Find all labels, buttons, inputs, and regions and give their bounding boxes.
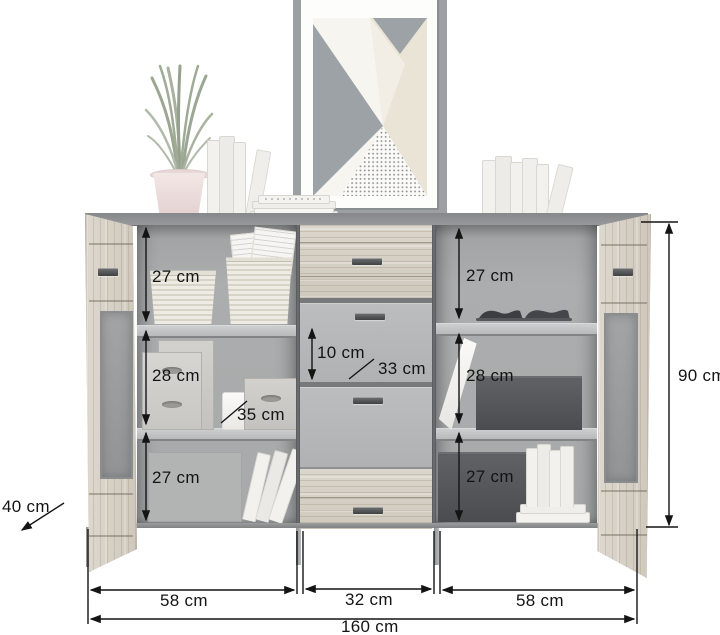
sideboard-dimension-diagram: 27 cm 28 cm 27 cm 35 cm 10 cm 33 cm 27 c… <box>0 0 720 635</box>
dim-label-right-comp-top: 27 cm <box>466 266 514 286</box>
dim-label-left-comp-mid: 28 cm <box>152 366 200 386</box>
dim-label-shelf-depth: 35 cm <box>237 405 285 425</box>
dim-label-right-width: 58 cm <box>516 591 564 611</box>
dim-label-depth: 40 cm <box>2 497 50 517</box>
dim-label-height: 90 cm <box>678 366 720 386</box>
dim-label-right-comp-bottom: 27 cm <box>466 467 514 487</box>
dim-label-left-comp-bottom: 27 cm <box>152 468 200 488</box>
dim-label-middle-width: 32 cm <box>345 590 393 610</box>
dim-label-drawer-height: 10 cm <box>317 343 365 363</box>
dim-label-left-width: 58 cm <box>160 591 208 611</box>
dim-label-right-comp-mid: 28 cm <box>466 366 514 386</box>
dim-label-left-comp-top: 27 cm <box>152 267 200 287</box>
dimension-lines <box>0 0 720 635</box>
dim-label-drawer-depth: 33 cm <box>378 359 426 379</box>
dim-label-total-width: 160 cm <box>341 617 399 635</box>
